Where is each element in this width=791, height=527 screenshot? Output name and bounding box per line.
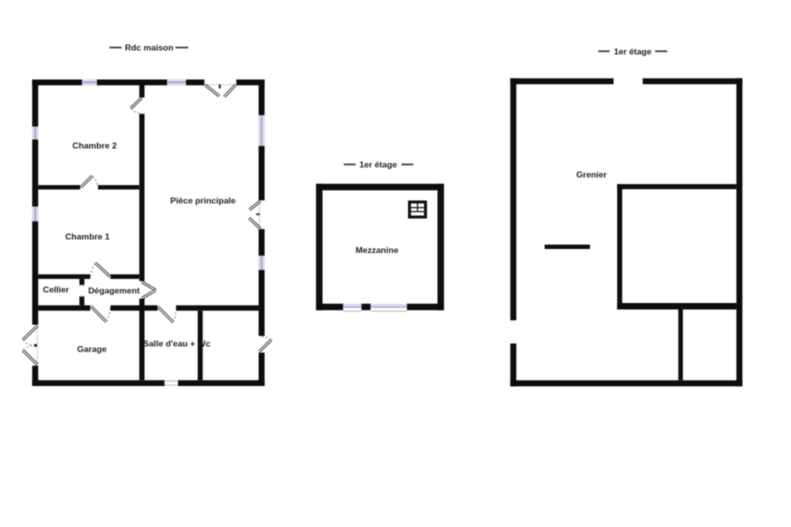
svg-text:Chambre 2: Chambre 2 — [72, 140, 117, 150]
svg-text:Dégagement: Dégagement — [88, 286, 140, 296]
svg-text:1er étage: 1er étage — [614, 46, 652, 56]
svg-text:Grenier: Grenier — [576, 170, 607, 180]
svg-text:Rdc maison: Rdc maison — [125, 43, 174, 53]
svg-text:Salle d'eau + Wc: Salle d'eau + Wc — [143, 338, 210, 348]
svg-text:Chambre 1: Chambre 1 — [65, 232, 110, 242]
svg-text:Cellier: Cellier — [43, 285, 70, 295]
svg-text:Mezzanine: Mezzanine — [356, 245, 399, 255]
svg-text:1er étage: 1er étage — [359, 160, 397, 170]
svg-text:Pièce principale: Pièce principale — [170, 196, 236, 206]
svg-text:Garage: Garage — [77, 344, 107, 354]
